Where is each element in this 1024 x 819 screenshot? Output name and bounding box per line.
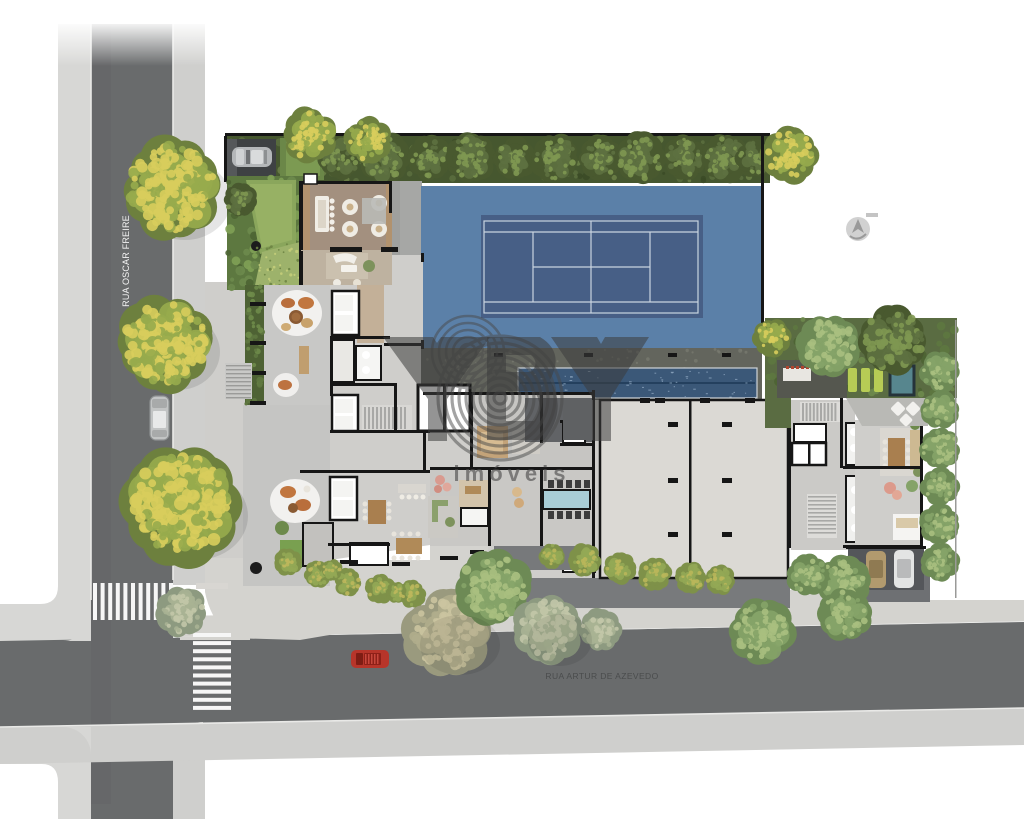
svg-text:RUA ARTUR DE AZEVEDO: RUA ARTUR DE AZEVEDO [545,671,658,681]
svg-text:imóveis: imóveis [454,461,571,486]
svg-text:RUA OSCAR FREIRE: RUA OSCAR FREIRE [121,215,131,307]
